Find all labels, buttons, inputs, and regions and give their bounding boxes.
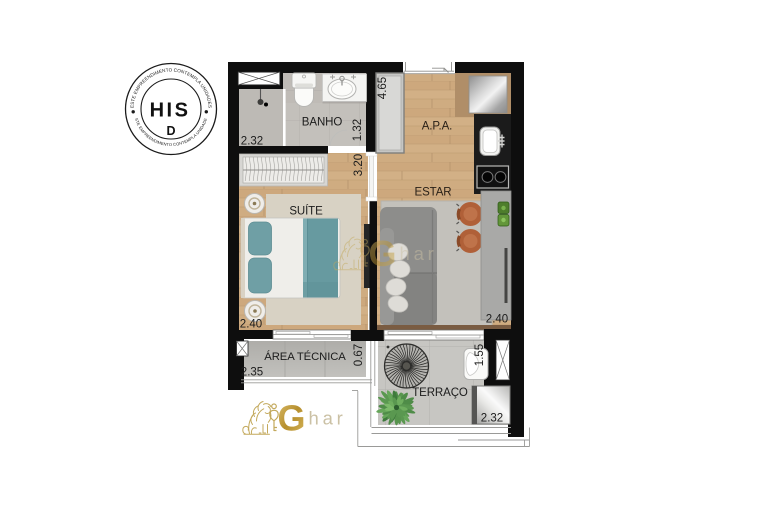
svg-text:TERRAÇO: TERRAÇO — [412, 387, 468, 399]
svg-text:1.32: 1.32 — [352, 119, 364, 141]
svg-text:2.40: 2.40 — [486, 314, 508, 326]
svg-text:SUÍTE: SUÍTE — [289, 205, 323, 218]
svg-text:2.35: 2.35 — [241, 367, 263, 379]
svg-text:HIS: HIS — [150, 100, 191, 122]
svg-text:0.67: 0.67 — [353, 344, 365, 366]
svg-text:3.20: 3.20 — [353, 154, 365, 176]
svg-text:2.40: 2.40 — [240, 319, 262, 331]
svg-text:ÁREA TÉCNICA: ÁREA TÉCNICA — [264, 350, 346, 363]
svg-text:BANHO: BANHO — [302, 117, 343, 129]
svg-text:2.32: 2.32 — [481, 413, 503, 425]
svg-text:1.55: 1.55 — [474, 344, 486, 366]
svg-text:G: G — [278, 398, 306, 439]
svg-text:4.65: 4.65 — [377, 77, 389, 99]
svg-text:2.32: 2.32 — [241, 136, 263, 148]
svg-text:ESTAR: ESTAR — [415, 187, 452, 199]
svg-text:har: har — [309, 408, 347, 429]
svg-text:A.P.A.: A.P.A. — [422, 121, 453, 133]
svg-text:D: D — [166, 124, 175, 138]
